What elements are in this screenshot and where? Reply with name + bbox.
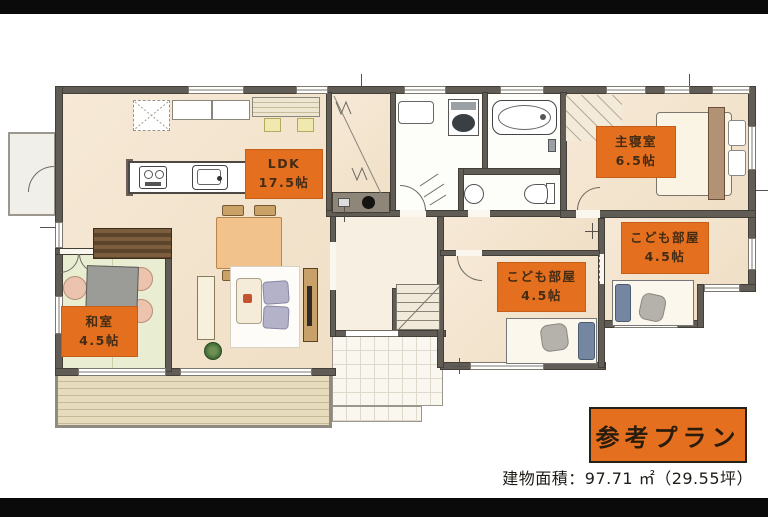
room-label-line1: LDK	[268, 155, 301, 174]
building-area-note: 建物面積：97.71 ㎡（29.55坪）	[440, 465, 753, 489]
room-label-ldk: LDK 17.5帖	[245, 149, 323, 199]
stairs-diagonal	[398, 286, 440, 330]
room-label-kids-right: こども部屋 4.5帖	[621, 222, 709, 274]
hanger-mark	[352, 168, 367, 180]
room-label-line2: 4.5帖	[645, 248, 686, 267]
room-label-line2: 17.5帖	[259, 174, 310, 193]
room-label-line2: 6.5帖	[616, 152, 657, 171]
top-letterbox-bar	[0, 0, 768, 14]
room-label-line1: こども部屋	[506, 268, 576, 287]
plan-title-text: 参考プラン	[596, 418, 741, 453]
plan-title-box: 参考プラン	[589, 407, 747, 463]
room-label-line2: 4.5帖	[79, 332, 120, 351]
pantry-diagonal	[334, 96, 388, 208]
room-label-master-bedroom: 主寝室 6.5帖	[596, 126, 676, 178]
room-label-washitsu: 和室 4.5帖	[61, 306, 138, 357]
room-label-line1: 主寝室	[615, 133, 657, 152]
room-label-line1: 和室	[85, 313, 113, 332]
floor-plan: LDK 17.5帖 主寝室 6.5帖 こども部屋 4.5帖 こども部屋 4.5帖…	[0, 0, 768, 517]
towel-rack-marks	[420, 174, 446, 205]
room-label-line2: 4.5帖	[521, 287, 562, 306]
bottom-letterbox-bar	[0, 498, 768, 517]
room-label-kids-left: こども部屋 4.5帖	[497, 262, 586, 312]
room-label-line1: こども部屋	[630, 229, 700, 248]
